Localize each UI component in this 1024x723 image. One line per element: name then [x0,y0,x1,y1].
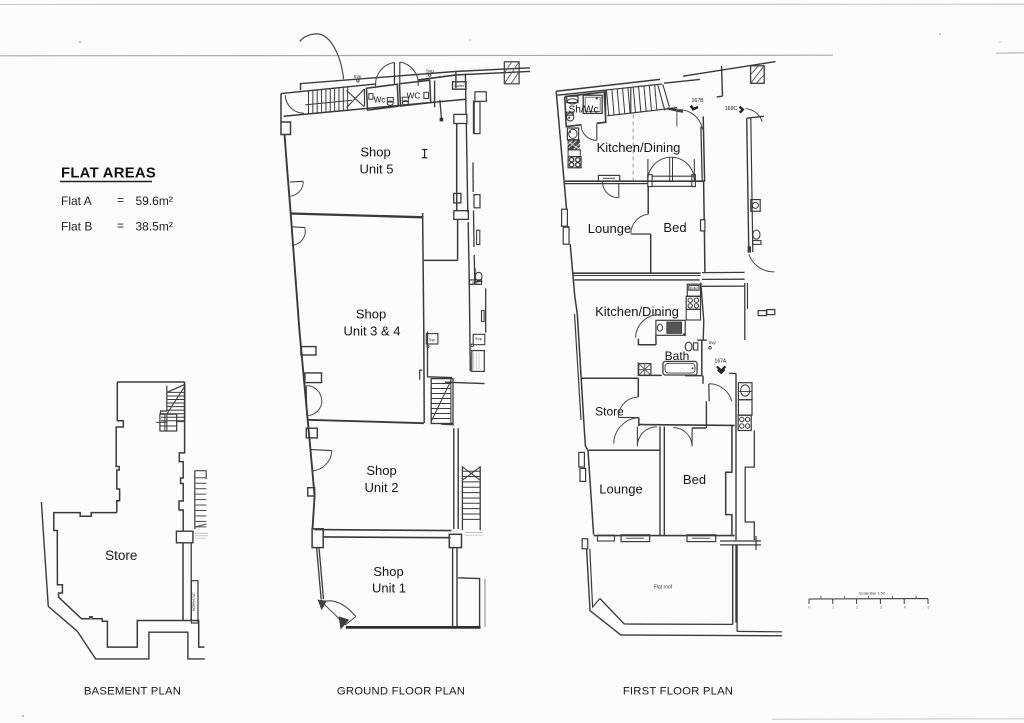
svg-text:Bed: Bed [663,220,686,235]
svg-text:FIRST FLOOR PLAN: FIRST FLOOR PLAN [623,686,733,698]
svg-text:Scale Bar 1:50: Scale Bar 1:50 [859,590,886,595]
svg-text:Svp: Svp [709,340,717,345]
svg-text:Svp: Svp [426,68,434,73]
svg-text:Svp: Svp [475,336,483,341]
svg-text:167B: 167B [691,98,704,104]
svg-text:MORRIS WC: MORRIS WC [192,592,196,612]
svg-text:Boiler: Boiler [690,287,700,291]
svg-text:Shop: Shop [356,307,386,322]
svg-text:Bath: Bath [665,349,690,363]
svg-text:Lounge: Lounge [599,482,642,497]
svg-text:Svp: Svp [429,338,436,342]
svg-text:59.6m²: 59.6m² [136,194,173,208]
svg-text:167A: 167A [715,359,727,365]
svg-text:Svp: Svp [354,74,362,79]
svg-text:Store: Store [595,404,624,418]
svg-text:Meter: Meter [472,280,479,284]
svg-text:Lounge: Lounge [588,221,631,236]
svg-text:Shop: Shop [373,564,403,579]
svg-text:Shop: Shop [360,145,390,160]
svg-text:3: 3 [880,606,882,610]
svg-text:4: 4 [904,606,906,610]
svg-text:Sh/Wc: Sh/Wc [568,105,598,116]
svg-text:Shop: Shop [366,463,396,478]
svg-text:BASEMENT PLAN: BASEMENT PLAN [84,686,181,698]
svg-text:Kitchen/Dining: Kitchen/Dining [597,140,681,155]
svg-text:Unit 2: Unit 2 [365,480,399,495]
svg-text:Unit 3 & 4: Unit 3 & 4 [343,323,400,338]
svg-text:Wc: Wc [374,96,386,105]
svg-text:Kitchen/Dining: Kitchen/Dining [595,304,679,319]
svg-text:5: 5 [928,606,930,610]
svg-text:0: 0 [809,606,811,610]
svg-text:38.5m²: 38.5m² [136,220,173,234]
svg-text:FLAT AREAS: FLAT AREAS [61,166,156,182]
svg-text:=: = [117,219,124,233]
svg-text:GROUND FLOOR PLAN: GROUND FLOOR PLAN [337,686,465,698]
svg-text:Bed: Bed [683,472,706,487]
svg-text:Store: Store [105,548,137,563]
svg-text:2: 2 [856,606,858,610]
svg-text:=: = [117,193,124,207]
svg-text:Flat roof: Flat roof [654,584,673,590]
svg-text:Unit 1: Unit 1 [372,580,406,595]
svg-text:WC: WC [407,92,421,101]
svg-text:Unit 5: Unit 5 [360,161,394,176]
svg-text:Flat B: Flat B [61,220,92,234]
svg-text:Flat A: Flat A [61,194,92,208]
svg-text:1: 1 [832,606,834,610]
svg-text:169C: 169C [725,106,738,112]
